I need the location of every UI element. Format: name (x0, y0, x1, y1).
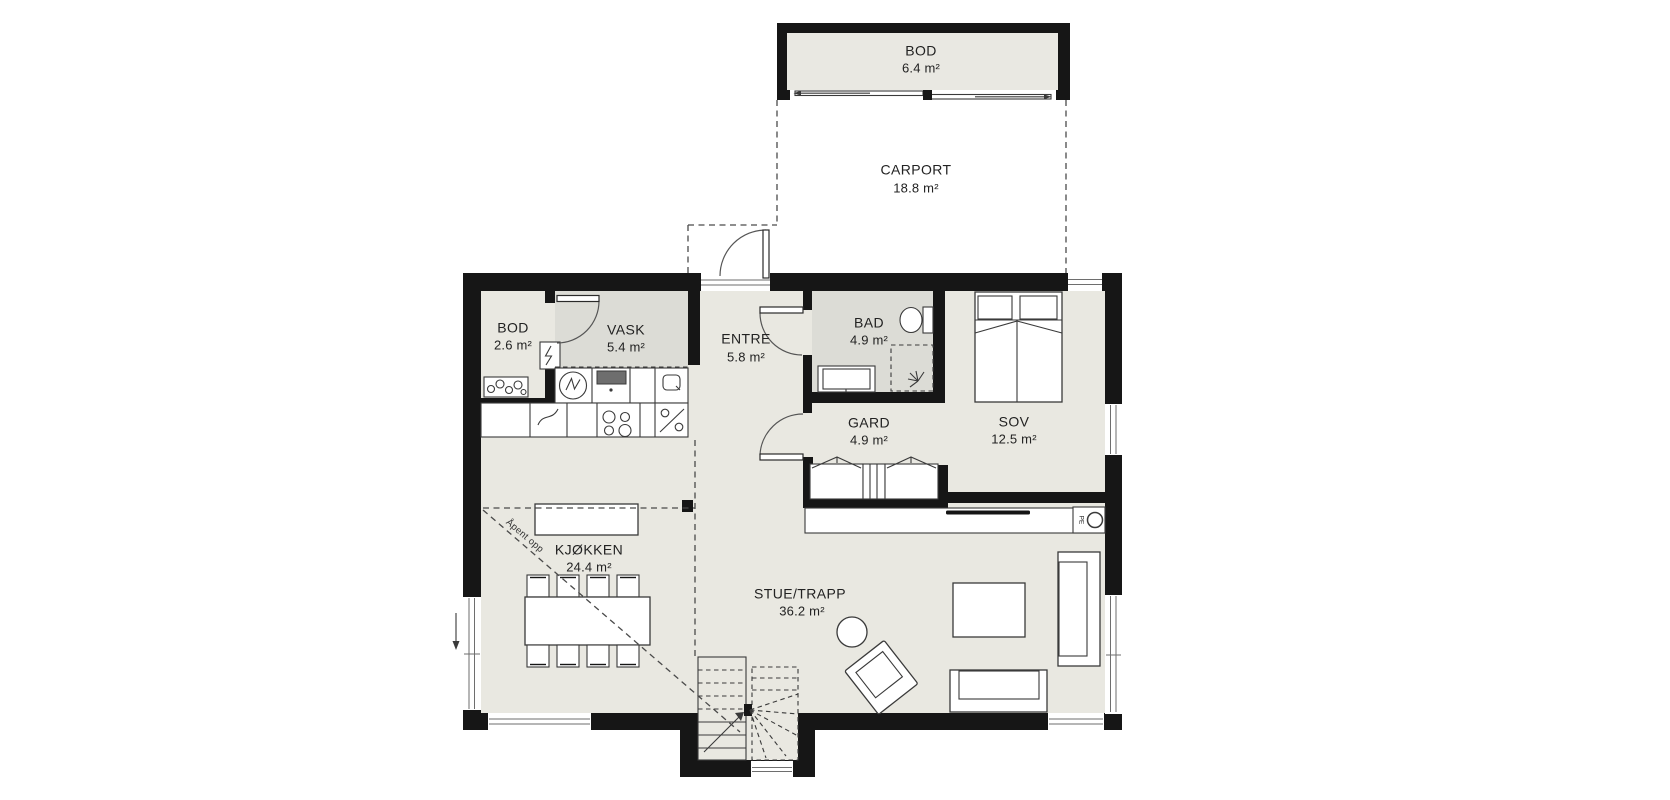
wall-sov-stue (948, 492, 1105, 503)
bedroom-furniture (975, 292, 1062, 402)
post (682, 500, 693, 512)
room-area-entre: 5.8 m² (727, 349, 766, 364)
entrance-door (720, 230, 769, 278)
entrance-opening (701, 273, 770, 291)
window-sov (1105, 404, 1122, 455)
room-label-entre: ENTRE (721, 331, 770, 347)
room-area-sov: 12.5 m² (991, 431, 1037, 446)
window-bottom-left (488, 713, 591, 730)
sliding-door (790, 90, 1056, 100)
window-living (1105, 595, 1122, 714)
electrical-cabinet (540, 342, 560, 369)
window-stair (751, 761, 793, 777)
toilet-icon (900, 307, 933, 333)
shelf-unit (863, 464, 885, 499)
pillow (1020, 296, 1057, 319)
dining-table (525, 597, 650, 645)
room-label-sov: SOV (999, 414, 1030, 430)
washing-machine-icon (560, 372, 587, 399)
room-label-bod: BOD (497, 320, 529, 336)
window-bottom-right (1048, 713, 1104, 730)
wardrobe (885, 464, 938, 499)
room-area-gard: 4.9 m² (850, 432, 889, 447)
wall-bad-sov (933, 291, 945, 397)
room-label-vask: VASK (607, 322, 645, 338)
floor-plan-svg: PE (0, 0, 1670, 800)
room-area-bod: 2.6 m² (494, 337, 533, 352)
room-label-stue: STUE/TRAPP (754, 586, 846, 602)
kitchen-counter (481, 403, 688, 437)
wall-vask-entre (688, 291, 700, 365)
fireplace-icon: PE (1073, 507, 1105, 533)
room-label-carport: CARPORT (881, 162, 952, 178)
room-label-bod-top: BOD (905, 43, 937, 59)
coffee-table (953, 583, 1025, 637)
sofa-vertical (1058, 552, 1100, 666)
bod-shelf (484, 377, 528, 397)
tv-icon (946, 511, 1030, 515)
room-area-bod-top: 6.4 m² (902, 60, 941, 75)
fireplace-label: PE (1077, 516, 1084, 525)
wardrobe (810, 464, 863, 499)
floor-plan-page: PE (0, 0, 1670, 800)
room-label-bad: BAD (854, 315, 884, 331)
sofa-horizontal (950, 670, 1047, 712)
room-area-kjokken: 24.4 m² (566, 559, 612, 574)
dining-set (525, 575, 650, 667)
vanity-sink (818, 366, 875, 392)
room-area-carport: 18.8 m² (893, 180, 939, 195)
room-area-bad: 4.9 m² (850, 332, 889, 347)
pillow (978, 296, 1012, 319)
side-table (837, 617, 867, 647)
room-area-vask: 5.4 m² (607, 339, 646, 354)
room-label-gard: GARD (848, 415, 890, 431)
room-label-kjokken: KJØKKEN (555, 542, 623, 558)
room-area-stue: 36.2 m² (779, 603, 825, 618)
wall-bad-bottom (812, 392, 945, 403)
window-left (453, 597, 482, 710)
window-top-right (1068, 273, 1102, 291)
